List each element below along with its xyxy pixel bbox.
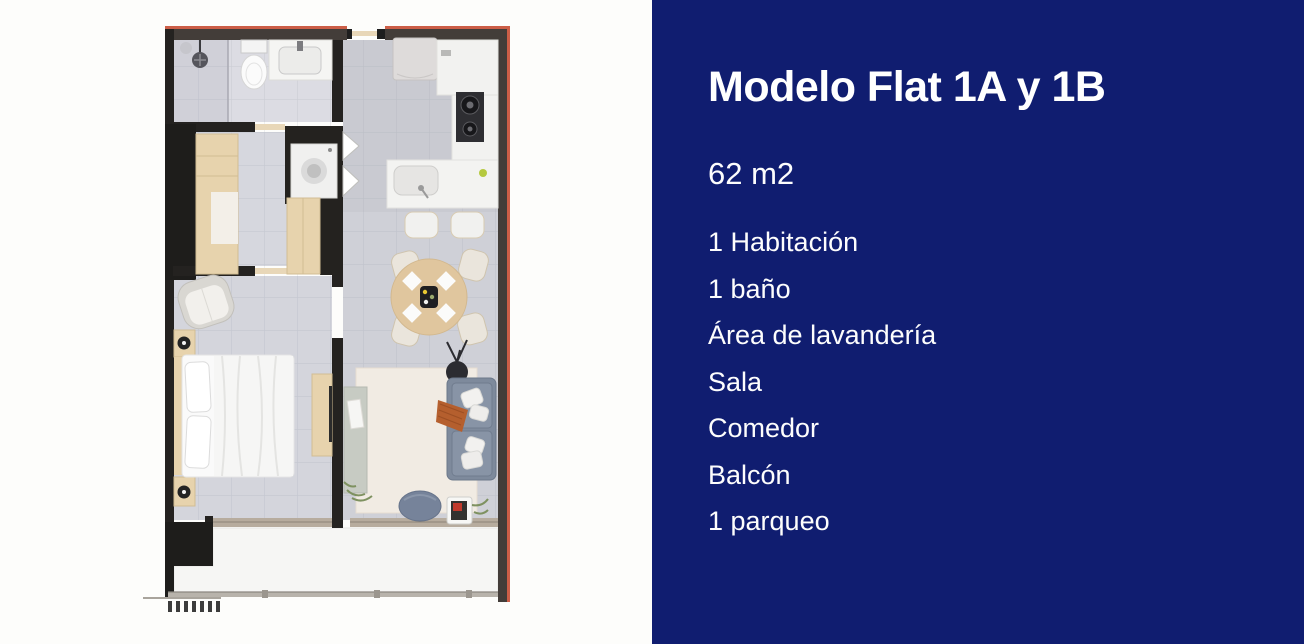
tv-screen: [329, 386, 332, 442]
island-sink: [394, 166, 438, 195]
structural-column: [165, 124, 196, 280]
fruit-2: [430, 295, 434, 299]
vanity-faucet: [297, 41, 303, 51]
washer-knob: [328, 148, 332, 152]
top-wall-red-line-2: [385, 26, 510, 30]
top-wall-red-line: [165, 26, 347, 30]
toilet-tank: [241, 40, 267, 53]
feature-bedrooms: 1 Habitación: [708, 219, 1264, 266]
feature-bathrooms: 1 baño: [708, 266, 1264, 313]
feature-balcony: Balcón: [708, 452, 1264, 499]
divider-wall-stub: [332, 275, 343, 287]
green-glass: [479, 169, 487, 177]
lamp-top-bulb: [182, 341, 186, 345]
feature-living: Sala: [708, 359, 1264, 406]
right-wall-red-line: [507, 26, 511, 602]
fruit-tray: [420, 286, 438, 308]
balcony-floor: [174, 528, 498, 592]
counter-top: [437, 40, 498, 95]
living-room: [344, 340, 496, 524]
counter-small-sink: [441, 50, 451, 56]
burner-small-center: [468, 127, 473, 132]
bathroom-right-wall: [332, 40, 343, 122]
feature-dining: Comedor: [708, 405, 1264, 452]
page-title: Modelo Flat 1A y 1B: [708, 64, 1264, 111]
balcony: [143, 590, 498, 612]
feature-laundry: Área de lavandería: [708, 312, 1264, 359]
scale-ticks: [168, 601, 220, 612]
railing-post-2: [374, 590, 380, 598]
bar-stool-1: [405, 212, 438, 238]
lamp-bottom-bulb: [182, 490, 186, 494]
fridge: [393, 38, 437, 80]
info-panel: Modelo Flat 1A y 1B 62 m2 1 Habitación 1…: [652, 0, 1304, 644]
bed-pillow-1: [185, 361, 212, 412]
fruit-1: [423, 290, 427, 294]
slider-jamb-2: [332, 516, 343, 528]
shower-drain: [180, 42, 192, 54]
fruit-3: [424, 300, 428, 304]
area-label: 62 m2: [708, 158, 1264, 189]
closet-open-shelf: [211, 192, 238, 244]
railing-post-3: [466, 590, 472, 598]
entry-door-jamb-left: [347, 29, 352, 39]
balcony-railing: [168, 592, 498, 597]
floorplan-drawing: [0, 0, 652, 644]
floorplan-panel: [0, 0, 652, 644]
hall-right-wall: [320, 195, 343, 275]
entry-door-jamb-right: [377, 29, 385, 39]
sofa-pillow-4: [461, 450, 484, 470]
right-wall: [498, 29, 507, 602]
toilet-bowl: [241, 55, 267, 89]
magazine-cover: [453, 503, 462, 511]
railing-post-1: [262, 590, 268, 598]
vanity-sink: [279, 47, 321, 74]
feature-parking: 1 parqueo: [708, 498, 1264, 545]
bathroom-door-threshold: [255, 124, 285, 130]
bedroom-door-threshold: [255, 268, 287, 274]
bar-stool-2: [451, 212, 484, 238]
bedroom-living-wall: [332, 338, 343, 520]
grid-reference-line: [143, 597, 221, 599]
feature-list: 1 Habitación 1 baño Área de lavandería S…: [708, 219, 1264, 545]
burner-large-center: [467, 102, 474, 109]
bed-pillow-2: [185, 415, 212, 468]
balcony-left-wall: [165, 522, 213, 566]
top-wall-left: [165, 29, 347, 40]
washer-door-inner: [307, 164, 321, 178]
